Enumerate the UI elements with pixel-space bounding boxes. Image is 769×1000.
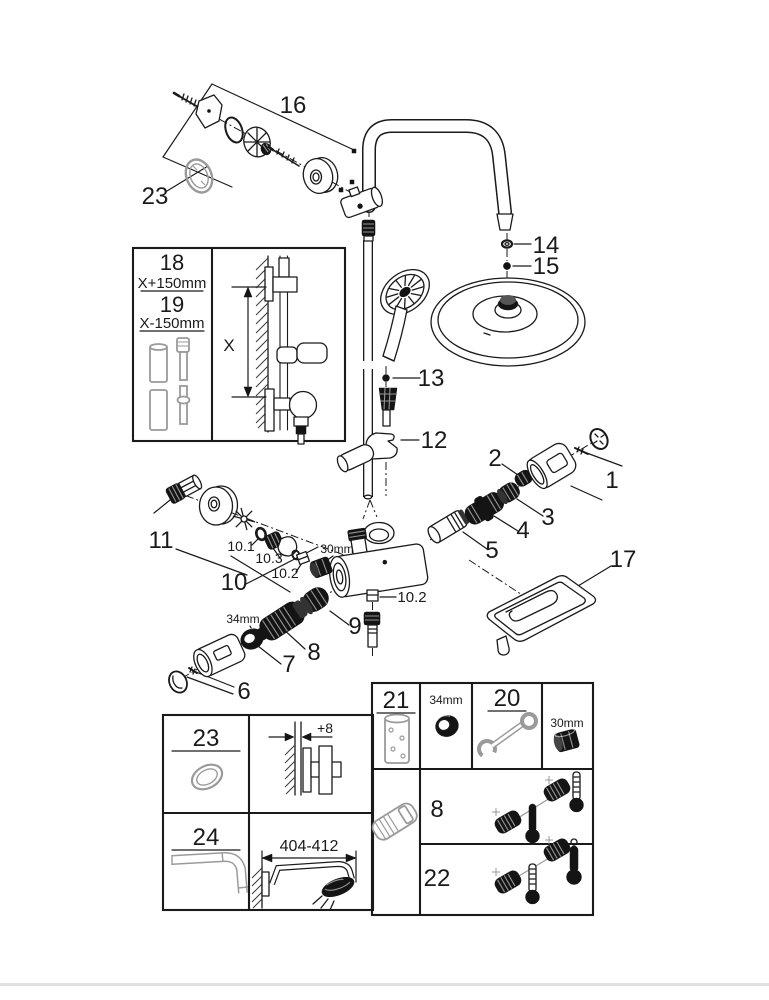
arm-gasket-14 [502,240,512,247]
label-part-19: 19 [160,292,184,317]
label-part-10-3: 10.3 [255,550,282,566]
inset-valve [265,389,317,444]
label-part-13: 13 [418,365,445,392]
label-part-15: 15 [533,253,560,280]
label-part-11: 11 [149,527,174,554]
part6-cap [166,632,247,695]
marker-dots [339,149,356,192]
label-dim-34mm: 34mm [226,612,259,626]
label-part-10-1: 10.1 [227,538,254,554]
ring-gasket-23 [181,156,217,197]
label-part-7: 7 [282,651,295,678]
part11-escutcheon [200,486,238,525]
part16-oring [222,115,246,145]
label-box-20: 20 [494,685,521,712]
label-box-21: 21 [383,687,410,714]
outlet-nipple [364,590,380,647]
rail-tube-21 [385,715,409,764]
part10-star-seal [233,508,254,529]
label-part-1: 1 [605,467,618,494]
label-x-axis: X [223,336,234,355]
part16-screw [174,93,198,107]
rail-tube-19 [177,338,190,424]
label-dim-30mm: 30mm [320,542,353,556]
part16-screw-2 [269,147,299,166]
inset-glide [277,343,327,363]
wrench-20-icon [476,714,536,760]
label-part-5: 5 [485,537,498,564]
head-shower [431,278,585,366]
label-box-24: 24 [193,824,220,851]
label-part-18: 18 [160,250,184,275]
label-part-10-2: 10.2 [271,565,298,581]
label-dim-plus8: +8 [317,720,333,736]
label-part-10-2-outlet: 10.2 [397,589,426,606]
label-part-10: 10 [221,569,248,596]
exploded-parts-diagram: 16 23 14 15 13 12 2 1 3 4 5 17 11 10.1 1… [0,0,769,1000]
label-box-34mm: 34mm [429,693,462,707]
soap-dish-17 [487,576,595,655]
shower-arm [369,126,513,230]
ring-gasket-23-cell [188,760,227,794]
label-part-3: 3 [541,504,554,531]
label-part-17: 17 [610,546,637,573]
part1-grip [523,426,611,492]
label-dim-404-412: 404-412 [280,838,339,855]
ring-34mm-icon [433,712,462,740]
shower-arm-24 [172,853,248,894]
page-bottom-divider [0,983,769,986]
label-part-23: 23 [142,183,169,210]
label-part-2: 2 [488,445,501,472]
label-box-22: 22 [424,865,451,892]
label-part-4: 4 [516,517,529,544]
label-dim-19: X-150mm [139,315,204,332]
arm-length-diagram [252,851,357,910]
cartridge-spare-icon [370,800,420,842]
flow-plug-15 [503,262,510,269]
hand-shower [372,260,438,361]
rail-tube-18 [150,344,167,430]
part16-flange [240,124,274,161]
rail-saddle-port [364,523,394,544]
label-box-23: 23 [193,725,220,752]
label-dim-18: X+150mm [138,275,207,292]
exploded-parts-diagram-page: 16 23 14 15 13 12 2 1 3 4 5 17 11 10.1 1… [0,0,769,1000]
label-part-6: 6 [237,678,250,705]
inset-wall-union [265,258,297,301]
thermo-kit-22 [492,836,582,904]
x-dimension-arrow [232,287,266,397]
check-valve-13 [379,388,397,426]
label-box-30mm: 30mm [550,716,583,730]
label-part-12: 12 [421,427,448,454]
nut-30mm-icon [551,727,579,753]
label-box-8: 8 [430,796,443,823]
label-part-16: 16 [280,92,307,119]
part16-escutcheon [299,154,341,196]
part16-plate-hole [207,109,210,112]
label-part-8: 8 [307,639,320,666]
thermo-kit-8 [492,772,584,843]
label-part-9: 9 [348,613,361,640]
check-valve-dot-13 [383,375,390,382]
pipe-clamp [338,180,385,241]
part5-sleeve [426,508,471,545]
